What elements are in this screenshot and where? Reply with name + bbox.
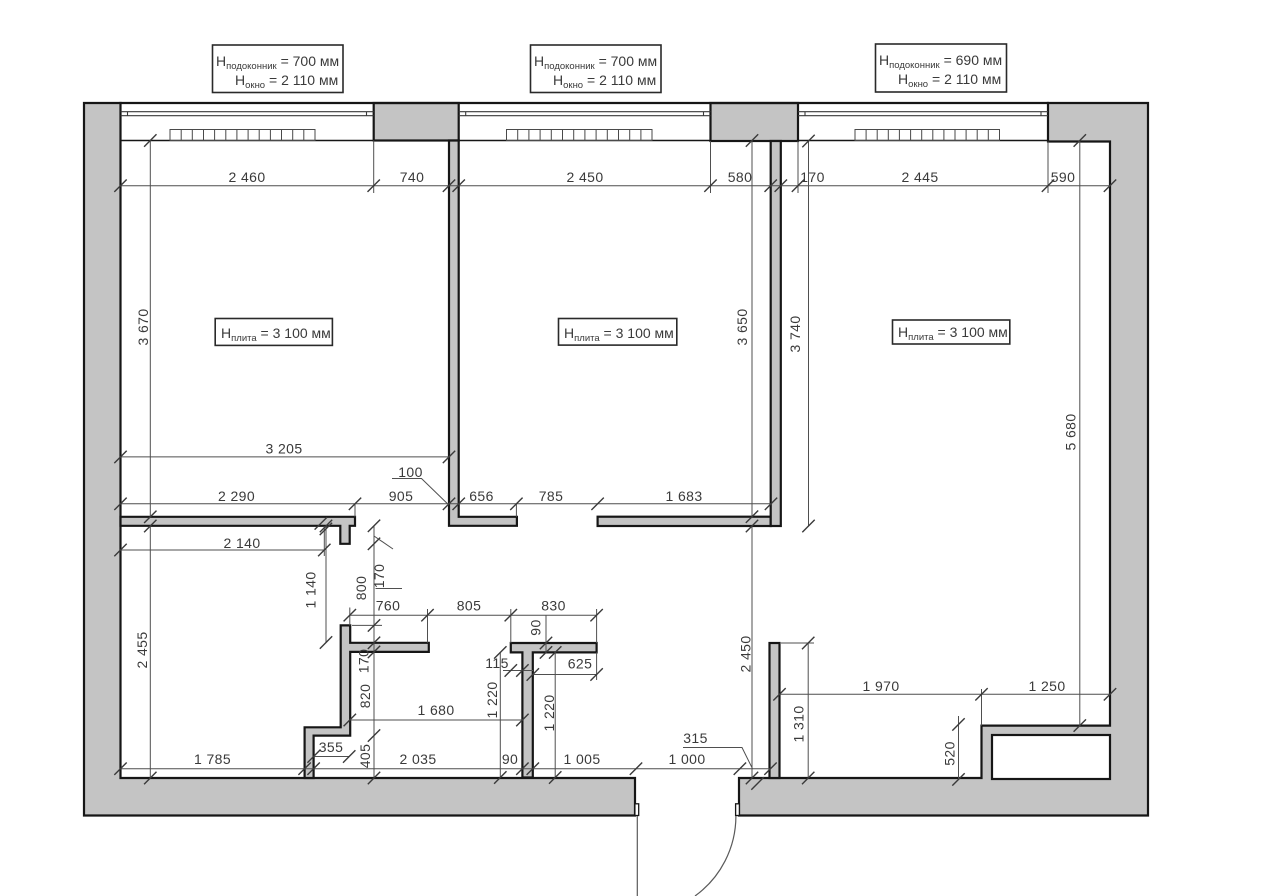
svg-text:405: 405 bbox=[357, 744, 373, 769]
svg-text:3 740: 3 740 bbox=[787, 315, 803, 352]
svg-text:170: 170 bbox=[371, 564, 387, 589]
svg-text:1 000: 1 000 bbox=[668, 751, 705, 767]
svg-text:590: 590 bbox=[1051, 169, 1076, 185]
svg-text:740: 740 bbox=[400, 169, 425, 185]
svg-text:760: 760 bbox=[376, 598, 401, 614]
svg-text:2 445: 2 445 bbox=[901, 169, 938, 185]
svg-text:2 455: 2 455 bbox=[134, 631, 150, 668]
svg-text:1 005: 1 005 bbox=[563, 751, 600, 767]
svg-text:5 680: 5 680 bbox=[1063, 413, 1079, 450]
svg-text:1 680: 1 680 bbox=[417, 702, 454, 718]
svg-text:1 785: 1 785 bbox=[194, 751, 231, 767]
svg-text:90: 90 bbox=[528, 619, 544, 635]
svg-text:1 250: 1 250 bbox=[1028, 678, 1065, 694]
svg-text:2 450: 2 450 bbox=[566, 169, 603, 185]
svg-text:2 140: 2 140 bbox=[223, 535, 260, 551]
svg-text:170: 170 bbox=[800, 169, 825, 185]
svg-text:90: 90 bbox=[502, 751, 518, 767]
svg-text:3 650: 3 650 bbox=[734, 308, 750, 345]
svg-text:1 220: 1 220 bbox=[541, 694, 557, 731]
svg-text:805: 805 bbox=[457, 598, 482, 614]
svg-text:625: 625 bbox=[568, 656, 593, 672]
svg-text:800: 800 bbox=[353, 576, 369, 601]
svg-text:1 220: 1 220 bbox=[484, 681, 500, 718]
svg-text:2 450: 2 450 bbox=[738, 635, 754, 672]
svg-text:170: 170 bbox=[356, 649, 372, 674]
svg-text:580: 580 bbox=[728, 169, 753, 185]
svg-text:1 683: 1 683 bbox=[665, 488, 702, 504]
svg-text:315: 315 bbox=[683, 730, 708, 746]
svg-text:115: 115 bbox=[485, 655, 509, 671]
svg-text:820: 820 bbox=[357, 684, 373, 709]
svg-text:1 140: 1 140 bbox=[303, 571, 319, 608]
svg-text:656: 656 bbox=[469, 488, 494, 504]
svg-text:2 460: 2 460 bbox=[228, 169, 265, 185]
svg-text:1 970: 1 970 bbox=[862, 678, 899, 694]
svg-text:520: 520 bbox=[942, 741, 958, 766]
svg-text:3 205: 3 205 bbox=[265, 441, 302, 457]
svg-text:355: 355 bbox=[319, 739, 344, 755]
svg-text:905: 905 bbox=[389, 488, 414, 504]
svg-text:2 290: 2 290 bbox=[218, 488, 255, 504]
svg-text:785: 785 bbox=[539, 488, 564, 504]
svg-text:100: 100 bbox=[398, 464, 423, 480]
svg-text:2 035: 2 035 bbox=[399, 751, 436, 767]
svg-text:830: 830 bbox=[541, 598, 566, 614]
svg-text:1 310: 1 310 bbox=[791, 705, 807, 742]
svg-text:3 670: 3 670 bbox=[135, 308, 151, 345]
